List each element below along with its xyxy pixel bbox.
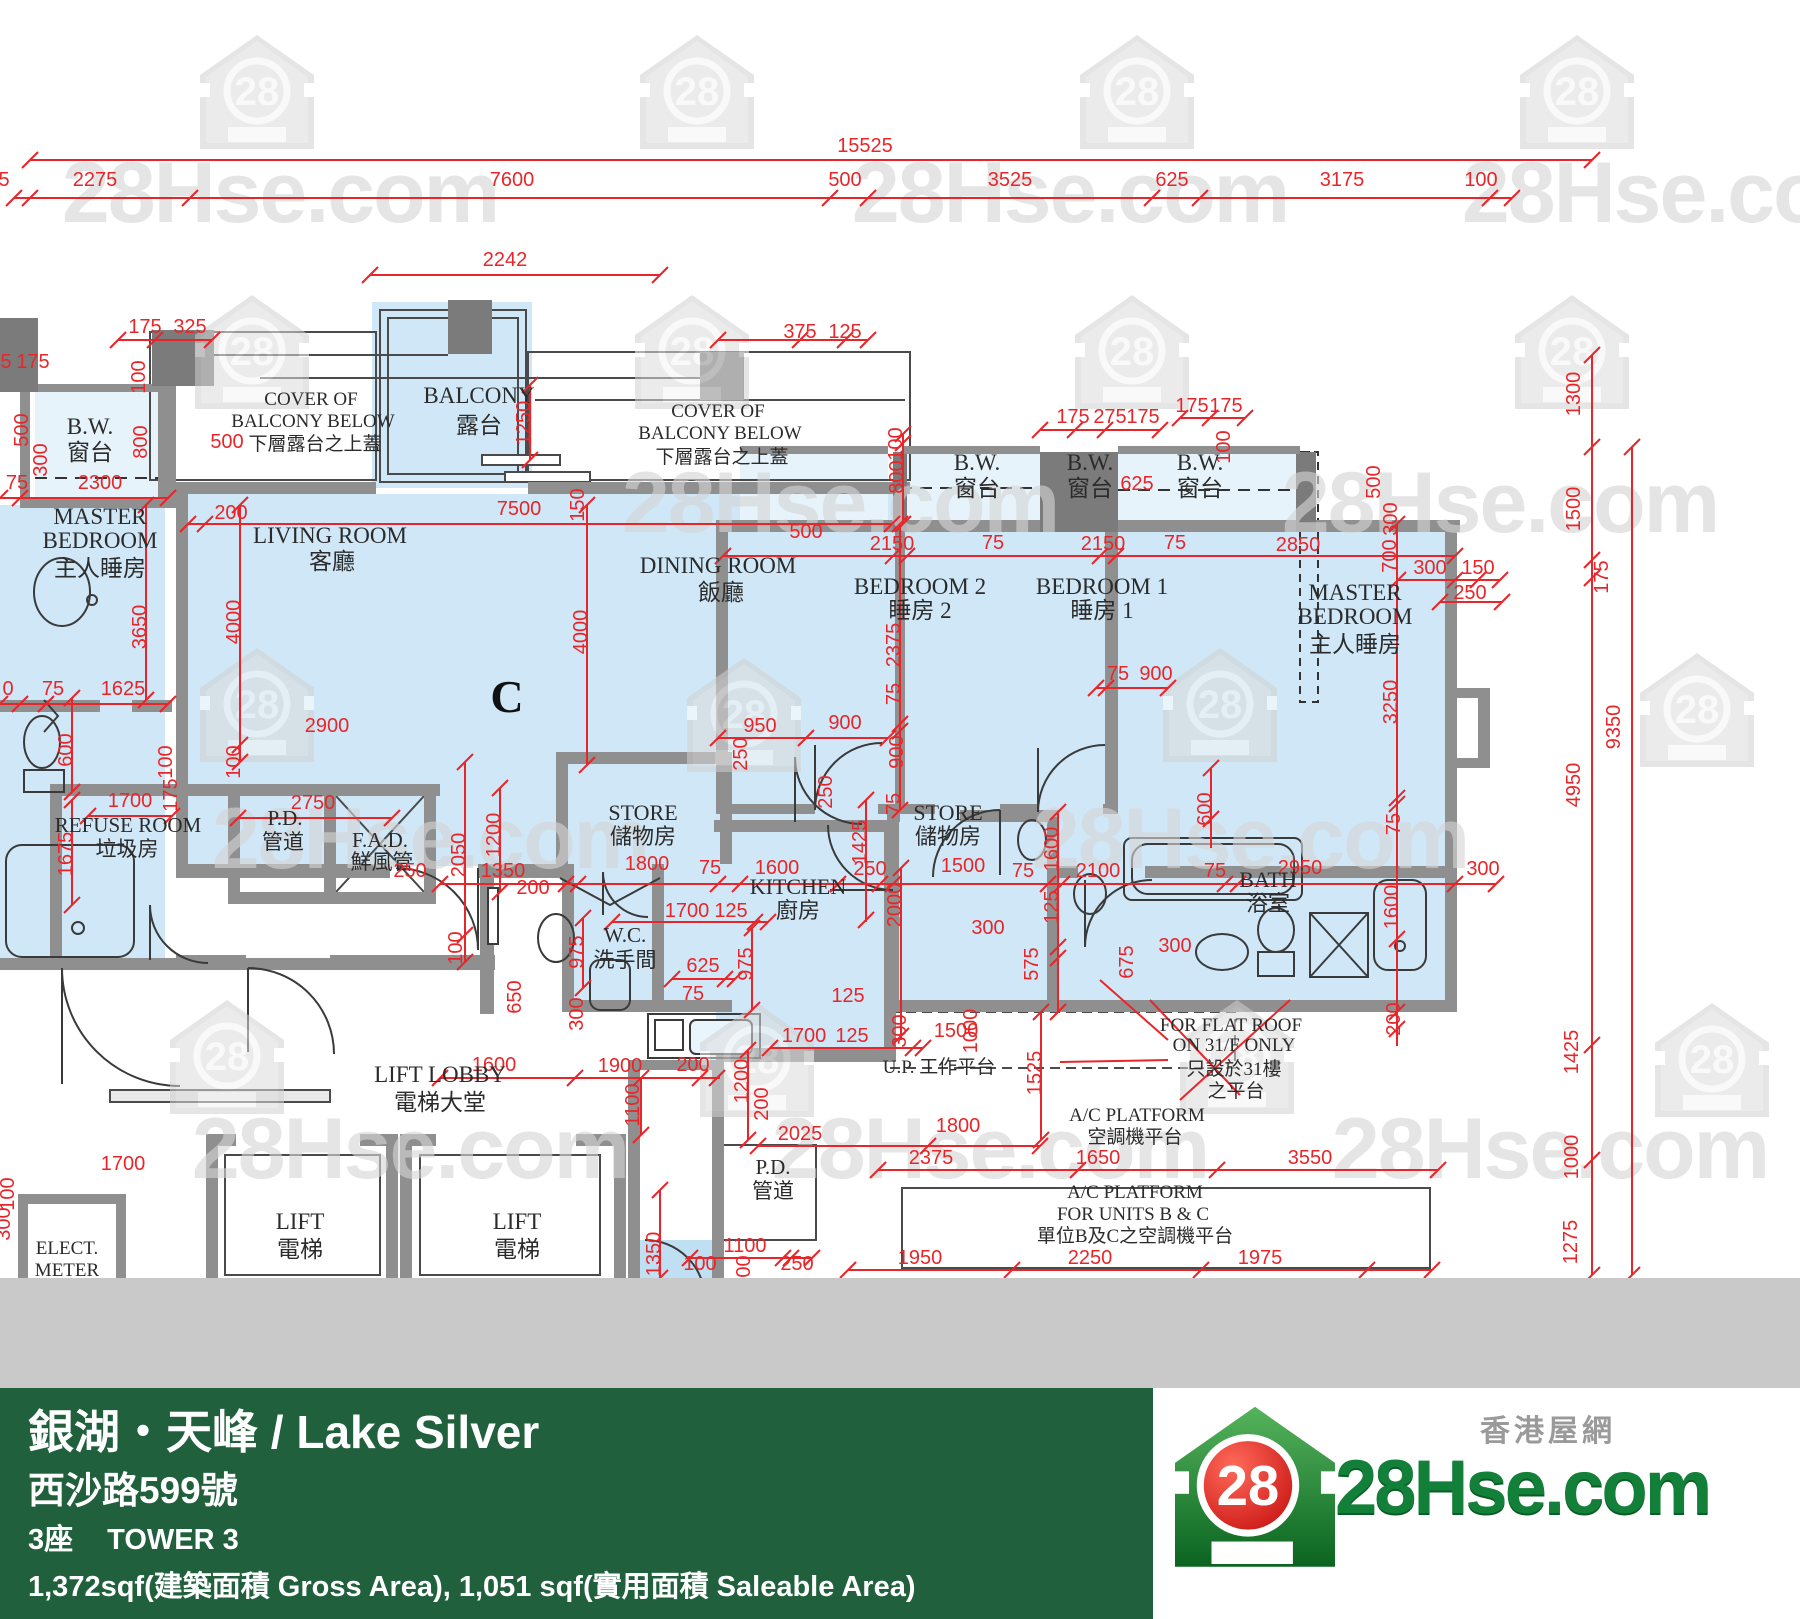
svg-text:500: 500 — [210, 431, 243, 453]
svg-text:900: 900 — [1139, 663, 1172, 685]
svg-text:2275: 2275 — [73, 169, 118, 191]
svg-text:1950: 1950 — [898, 1247, 943, 1269]
svg-text:75: 75 — [6, 472, 28, 494]
svg-text:電梯: 電梯 — [494, 1237, 540, 1262]
svg-text:1300: 1300 — [1563, 372, 1585, 417]
svg-text:電梯: 電梯 — [277, 1237, 323, 1262]
svg-text:LIFT: LIFT — [276, 1209, 325, 1234]
svg-text:700: 700 — [1379, 539, 1401, 572]
svg-text:1425: 1425 — [849, 820, 871, 865]
svg-text:1700: 1700 — [665, 900, 710, 922]
svg-text:2250: 2250 — [1068, 1247, 1113, 1269]
svg-text:窗台: 窗台 — [954, 476, 1000, 501]
svg-text:只設於31樓: 只設於31樓 — [1186, 1058, 1281, 1080]
svg-text:100: 100 — [155, 745, 177, 778]
svg-text:1900: 1900 — [598, 1055, 643, 1077]
svg-text:28Hse.com: 28Hse.com — [192, 1101, 628, 1197]
banner-green-panel: 銀湖・天峰 / Lake Silver 西沙路599號 3座TOWER 3 1,… — [0, 1388, 1153, 1619]
svg-text:2375: 2375 — [883, 623, 905, 668]
svg-text:100: 100 — [1464, 169, 1497, 191]
svg-text:100: 100 — [445, 931, 467, 964]
svg-text:250: 250 — [780, 1253, 813, 1275]
svg-text:W.C.: W.C. — [604, 923, 646, 947]
svg-text:575: 575 — [1021, 947, 1043, 980]
svg-text:1275: 1275 — [1560, 1220, 1582, 1265]
28hse-logo[interactable]: 28 香港屋網 28Hse.com — [1175, 1396, 1795, 1616]
svg-text:BEDROOM: BEDROOM — [1297, 604, 1412, 629]
svg-text:下層露台之上蓋: 下層露台之上蓋 — [655, 446, 788, 468]
tower-zh: 3座 — [28, 1524, 73, 1556]
svg-text:75: 75 — [883, 793, 905, 815]
svg-text:300: 300 — [30, 443, 52, 476]
svg-text:2850: 2850 — [1276, 534, 1321, 556]
svg-text:1600: 1600 — [1041, 827, 1063, 872]
svg-text:675: 675 — [1116, 945, 1138, 978]
svg-text:管道: 管道 — [752, 1179, 794, 1203]
svg-text:2150: 2150 — [1081, 533, 1126, 555]
svg-text:2100: 2100 — [1076, 860, 1121, 882]
svg-text:250: 250 — [730, 737, 752, 770]
svg-text:300: 300 — [1413, 557, 1446, 579]
svg-text:2000: 2000 — [884, 883, 906, 928]
svg-text:1250: 1250 — [513, 401, 535, 446]
svg-text:2900: 2900 — [305, 715, 350, 737]
svg-text:325: 325 — [173, 316, 206, 338]
28hse-house-icon: 28 — [1175, 1406, 1335, 1576]
floorplan-page: 28 — [0, 0, 1800, 1619]
svg-text:A/C PLATFORM: A/C PLATFORM — [1067, 1182, 1203, 1203]
svg-text:75: 75 — [1012, 860, 1034, 882]
svg-text:1975: 1975 — [1238, 1247, 1283, 1269]
svg-text:DINING ROOM: DINING ROOM — [640, 553, 797, 578]
svg-text:LIVING ROOM: LIVING ROOM — [253, 523, 407, 548]
svg-text:1200: 1200 — [731, 1059, 753, 1104]
svg-text:FOR UNITS B & C: FOR UNITS B & C — [1057, 1204, 1209, 1225]
svg-text:客廳: 客廳 — [309, 549, 355, 574]
svg-text:900: 900 — [828, 712, 861, 734]
svg-text:4000: 4000 — [223, 600, 245, 645]
svg-text:廚房: 廚房 — [776, 898, 820, 923]
svg-text:3525: 3525 — [988, 169, 1033, 191]
svg-text:75: 75 — [699, 857, 721, 879]
bottom-gray-band — [0, 1278, 1800, 1388]
svg-text:1200: 1200 — [483, 813, 505, 858]
svg-text:主人睡房: 主人睡房 — [54, 556, 146, 581]
svg-text:175: 175 — [1209, 395, 1242, 417]
svg-text:BALCONY BELOW: BALCONY BELOW — [638, 423, 801, 444]
svg-text:1700: 1700 — [101, 1153, 146, 1175]
svg-text:睡房 2: 睡房 2 — [888, 598, 951, 623]
svg-text:300: 300 — [1380, 502, 1402, 535]
svg-text:5: 5 — [0, 169, 10, 191]
svg-text:3250: 3250 — [1380, 680, 1402, 725]
svg-text:250: 250 — [815, 775, 837, 808]
svg-text:4950: 4950 — [1563, 763, 1585, 808]
svg-text:375: 375 — [783, 321, 816, 343]
svg-text:1650: 1650 — [1076, 1147, 1121, 1169]
svg-text:BEDROOM: BEDROOM — [42, 528, 157, 553]
svg-text:250: 250 — [393, 860, 426, 882]
svg-text:28: 28 — [1217, 1454, 1279, 1517]
svg-text:1350: 1350 — [643, 1232, 665, 1277]
svg-text:窗台: 窗台 — [67, 440, 113, 465]
svg-text:COVER OF: COVER OF — [671, 401, 764, 422]
svg-text:300: 300 — [1466, 858, 1499, 880]
svg-text:窗台: 窗台 — [1177, 476, 1223, 501]
svg-text:175: 175 — [1056, 406, 1089, 428]
svg-text:空調機平台: 空調機平台 — [1087, 1126, 1182, 1148]
svg-text:C: C — [490, 671, 523, 722]
svg-text:7600: 7600 — [490, 169, 535, 191]
svg-text:300: 300 — [889, 1014, 911, 1047]
svg-text:625: 625 — [1120, 473, 1153, 495]
svg-text:625: 625 — [1155, 169, 1188, 191]
svg-text:175: 175 — [1175, 395, 1208, 417]
svg-text:900: 900 — [886, 735, 908, 768]
svg-text:175: 175 — [160, 778, 182, 811]
svg-text:125: 125 — [835, 1025, 868, 1047]
svg-text:950: 950 — [743, 715, 776, 737]
svg-text:1500: 1500 — [1563, 487, 1585, 532]
logo-site-text: 28Hse.com — [1335, 1444, 1709, 1531]
svg-text:150: 150 — [567, 488, 589, 521]
svg-text:管道: 管道 — [262, 830, 304, 854]
svg-text:ELECT.: ELECT. — [36, 1238, 98, 1259]
svg-text:200: 200 — [751, 1087, 773, 1120]
svg-text:洗手間: 洗手間 — [594, 948, 657, 972]
svg-text:200: 200 — [1383, 1002, 1405, 1035]
area-info: 1,372sqf(建築面積 Gross Area), 1,051 sqf(實用面… — [28, 1563, 916, 1605]
svg-text:B.W.: B.W. — [1067, 450, 1113, 475]
svg-text:175: 175 — [1126, 406, 1159, 428]
svg-text:1000: 1000 — [1561, 1135, 1583, 1180]
svg-text:5: 5 — [0, 351, 11, 373]
svg-text:125: 125 — [831, 985, 864, 1007]
svg-text:300: 300 — [971, 917, 1004, 939]
svg-text:STORE: STORE — [608, 800, 677, 825]
svg-text:175: 175 — [128, 316, 161, 338]
svg-text:125: 125 — [1041, 890, 1063, 923]
svg-text:75: 75 — [1204, 860, 1226, 882]
svg-text:75: 75 — [42, 678, 64, 700]
svg-text:800: 800 — [130, 425, 152, 458]
svg-text:75: 75 — [982, 532, 1004, 554]
svg-text:650: 650 — [504, 980, 526, 1013]
svg-text:睡房 1: 睡房 1 — [1070, 598, 1133, 623]
svg-text:F.A.D.: F.A.D. — [352, 828, 408, 852]
svg-text:2150: 2150 — [870, 533, 915, 555]
svg-text:2242: 2242 — [483, 249, 528, 271]
svg-text:0: 0 — [2, 678, 13, 700]
svg-text:500: 500 — [1363, 465, 1385, 498]
svg-text:1625: 1625 — [101, 678, 146, 700]
svg-text:FOR FLAT ROOF: FOR FLAT ROOF — [1160, 1015, 1302, 1036]
svg-text:175: 175 — [16, 351, 49, 373]
svg-text:3550: 3550 — [1288, 1147, 1333, 1169]
svg-text:露台: 露台 — [456, 413, 502, 438]
svg-text:3650: 3650 — [129, 605, 151, 650]
svg-text:主人睡房: 主人睡房 — [1309, 632, 1401, 657]
svg-text:100: 100 — [0, 1177, 19, 1210]
svg-text:975: 975 — [566, 935, 588, 968]
svg-text:300: 300 — [1158, 935, 1191, 957]
svg-text:BALCONY BELOW: BALCONY BELOW — [231, 411, 394, 432]
svg-text:ON 31/F ONLY: ON 31/F ONLY — [1173, 1035, 1296, 1056]
tower-label: 3座TOWER 3 — [28, 1516, 239, 1558]
svg-text:600: 600 — [1194, 792, 1216, 825]
svg-text:500: 500 — [789, 521, 822, 543]
svg-text:儲物房: 儲物房 — [915, 824, 981, 849]
info-banner: 銀湖・天峰 / Lake Silver 西沙路599號 3座TOWER 3 1,… — [0, 1388, 1800, 1619]
svg-text:1525: 1525 — [1024, 1051, 1046, 1096]
svg-text:BATH: BATH — [1239, 867, 1297, 892]
estate-address: 西沙路599號 — [28, 1460, 238, 1514]
svg-text:275: 275 — [1093, 406, 1126, 428]
estate-title: 銀湖・天峰 / Lake Silver — [28, 1396, 539, 1462]
svg-text:600: 600 — [55, 733, 77, 766]
svg-text:飯廳: 飯廳 — [698, 580, 744, 605]
svg-text:1100: 1100 — [723, 1235, 766, 1257]
svg-text:4000: 4000 — [570, 610, 592, 655]
svg-text:1600: 1600 — [1381, 885, 1403, 930]
svg-text:1700: 1700 — [108, 790, 153, 812]
svg-text:之平台: 之平台 — [1207, 1080, 1264, 1102]
svg-text:U.P. 工作平台: U.P. 工作平台 — [883, 1056, 995, 1078]
svg-text:975: 975 — [735, 947, 757, 980]
svg-text:電梯大堂: 電梯大堂 — [394, 1090, 486, 1115]
svg-text:100: 100 — [223, 745, 245, 778]
svg-text:3175: 3175 — [1320, 169, 1365, 191]
svg-text:28Hse.com: 28Hse.com — [1332, 1101, 1768, 1197]
svg-text:300: 300 — [566, 997, 588, 1030]
svg-text:COVER OF: COVER OF — [264, 389, 357, 410]
svg-text:MASTER: MASTER — [1308, 580, 1402, 605]
floorplan-drawing: 28 — [0, 0, 1800, 1388]
svg-text:1000: 1000 — [960, 1009, 982, 1054]
svg-text:B.W.: B.W. — [954, 450, 1000, 475]
svg-text:7500: 7500 — [497, 498, 542, 520]
svg-text:75: 75 — [1383, 813, 1405, 835]
svg-text:BEDROOM 2: BEDROOM 2 — [854, 574, 986, 599]
svg-text:28Hse.com: 28Hse.com — [1282, 455, 1718, 551]
svg-text:2375: 2375 — [909, 1147, 954, 1169]
svg-text:200: 200 — [214, 502, 247, 524]
svg-text:STORE: STORE — [913, 800, 982, 825]
svg-text:LIFT LOBBY: LIFT LOBBY — [374, 1062, 506, 1087]
svg-text:1700: 1700 — [782, 1025, 827, 1047]
svg-text:300: 300 — [0, 1207, 15, 1240]
svg-text:75: 75 — [1107, 663, 1129, 685]
svg-text:P.D.: P.D. — [267, 806, 302, 830]
svg-text:儲物房: 儲物房 — [610, 824, 676, 849]
svg-text:500: 500 — [828, 169, 861, 191]
svg-text:2050: 2050 — [448, 833, 470, 878]
svg-text:1800: 1800 — [936, 1115, 981, 1137]
svg-text:METER: METER — [35, 1260, 100, 1281]
svg-text:75: 75 — [682, 983, 704, 1005]
svg-text:1675: 1675 — [55, 832, 77, 877]
svg-text:800: 800 — [886, 460, 908, 493]
svg-text:窗台: 窗台 — [1067, 476, 1113, 501]
svg-text:1100: 1100 — [622, 1083, 644, 1126]
svg-text:150: 150 — [1461, 557, 1494, 579]
svg-text:A/C PLATFORM: A/C PLATFORM — [1069, 1105, 1205, 1126]
svg-text:P.D.: P.D. — [755, 1155, 790, 1179]
svg-text:100: 100 — [128, 360, 150, 393]
svg-text:75: 75 — [883, 683, 905, 705]
svg-text:垃圾房: 垃圾房 — [96, 837, 159, 861]
svg-text:BEDROOM 1: BEDROOM 1 — [1036, 574, 1168, 599]
svg-text:2025: 2025 — [778, 1123, 823, 1145]
svg-text:100: 100 — [683, 1253, 716, 1275]
svg-text:B.W.: B.W. — [67, 414, 113, 439]
svg-text:250: 250 — [1453, 582, 1486, 604]
svg-text:B.W.: B.W. — [1177, 450, 1223, 475]
svg-text:125: 125 — [828, 321, 861, 343]
svg-text:175: 175 — [1591, 560, 1613, 593]
svg-text:15525: 15525 — [837, 135, 893, 157]
svg-text:MASTER: MASTER — [53, 504, 147, 529]
svg-text:1800: 1800 — [625, 853, 670, 875]
svg-text:下層露台之上蓋: 下層露台之上蓋 — [248, 433, 381, 455]
svg-text:LIFT: LIFT — [493, 1209, 542, 1234]
svg-text:625: 625 — [686, 955, 719, 977]
tower-en: TOWER 3 — [107, 1524, 239, 1556]
svg-text:KITCHEN: KITCHEN — [750, 874, 847, 899]
svg-text:2300: 2300 — [78, 472, 123, 494]
svg-text:500: 500 — [11, 413, 33, 446]
svg-text:200: 200 — [676, 1054, 709, 1076]
svg-text:100: 100 — [885, 427, 907, 460]
svg-text:浴室: 浴室 — [1246, 891, 1290, 916]
svg-text:125: 125 — [714, 900, 747, 922]
svg-text:200: 200 — [516, 877, 549, 899]
svg-text:單位B及C之空調機平台: 單位B及C之空調機平台 — [1037, 1225, 1233, 1247]
svg-text:9350: 9350 — [1603, 705, 1625, 750]
svg-text:1500: 1500 — [941, 855, 986, 877]
svg-text:75: 75 — [1164, 532, 1186, 554]
svg-text:1425: 1425 — [1561, 1030, 1583, 1075]
